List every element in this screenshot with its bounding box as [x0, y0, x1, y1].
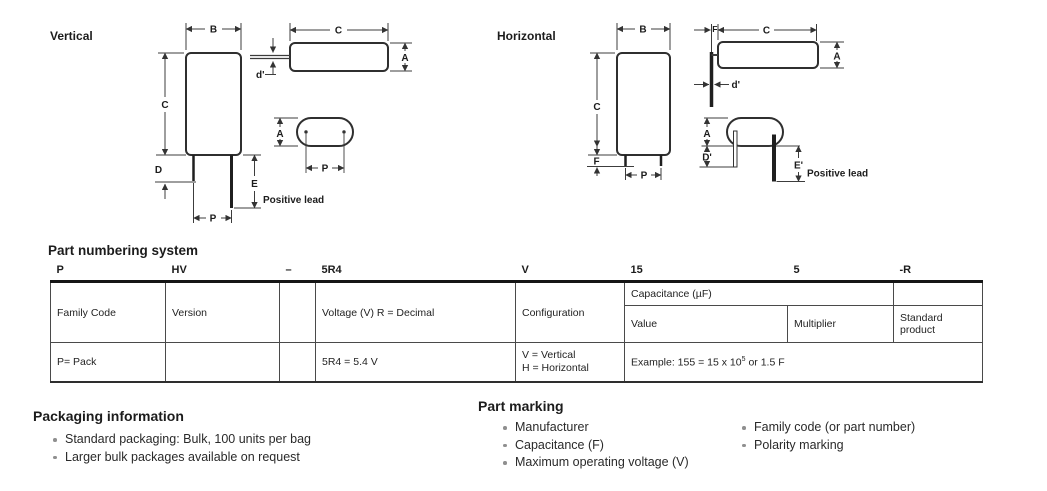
dim-label-b-h-front: B [639, 25, 646, 36]
dim-label-a-v-side: A [401, 53, 408, 64]
bullet-icon [503, 444, 507, 448]
list-item: Manufacturer [503, 419, 689, 437]
label-configuration: Configuration [516, 282, 625, 343]
part-marking-list-right: Family code (or part number) Polarity ma… [742, 419, 915, 454]
list-item: Maximum operating voltage (V) [503, 454, 689, 472]
list-item-text: Manufacturer [515, 420, 589, 434]
list-item: Standard packaging: Bulk, 100 units per … [53, 431, 311, 449]
bullet-icon [742, 444, 746, 448]
dim-label-f-h-side: F [712, 24, 717, 34]
list-item: Larger bulk packages available on reques… [53, 449, 311, 467]
part-numbering-heading: Part numbering system [48, 243, 198, 258]
label-standard-product: Standard product [894, 306, 983, 343]
code-suffix: -R [894, 262, 983, 282]
vertical-front-view [155, 23, 261, 223]
bullet-icon [53, 438, 57, 442]
horizontal-top-view [700, 118, 806, 182]
part-marking-heading: Part marking [478, 398, 564, 414]
label-family-code: Family Code [51, 282, 166, 343]
dim-label-c-h-front: C [593, 102, 600, 113]
values-row: P= Pack 5R4 = 5.4 V V = Vertical H = Hor… [51, 343, 983, 382]
label-capacitance: Capacitance (µF) [625, 282, 894, 306]
config-vertical-option: V = Vertical [522, 349, 619, 362]
dim-label-dprime-v-side: d' [256, 70, 265, 81]
code-config: V [516, 262, 625, 282]
dim-label-a-h-side: A [833, 52, 840, 63]
list-item-text: Standard packaging: Bulk, 100 units per … [65, 432, 311, 446]
list-item-text: Maximum operating voltage (V) [515, 455, 689, 469]
dim-label-dprime2-h-top: D' [702, 153, 712, 164]
meaning-row: Family Code Version Voltage (V) R = Deci… [51, 282, 983, 306]
bullet-icon [503, 426, 507, 430]
dim-label-b-v-front: B [210, 25, 217, 36]
positive-lead-label-horizontal: Positive lead [807, 169, 868, 180]
dim-label-c-v-front: C [161, 100, 168, 111]
positive-lead-label-vertical: Positive lead [263, 195, 324, 206]
dim-label-p-h-front: P [641, 171, 648, 182]
label-value: Value [625, 306, 788, 343]
list-item: Polarity marking [742, 437, 915, 455]
bullet-icon [503, 461, 507, 465]
value-family: P= Pack [51, 343, 166, 382]
value-capacitance-example: Example: 155 = 15 x 105 or 1.5 F [625, 343, 983, 382]
value-configuration: V = Vertical H = Horizontal [516, 343, 625, 382]
dim-label-a-h-top: A [703, 129, 710, 140]
code-dash: – [280, 262, 316, 282]
label-voltage: Voltage (V) R = Decimal [316, 282, 516, 343]
list-item-text: Family code (or part number) [754, 420, 915, 434]
list-item-text: Capacitance (F) [515, 438, 604, 452]
packaging-heading: Packaging information [33, 408, 184, 424]
label-dash-empty [280, 282, 316, 343]
dim-label-eprime-h-top: E' [794, 161, 803, 172]
value-dash-empty [280, 343, 316, 382]
label-version: Version [166, 282, 280, 343]
vertical-side-view [250, 23, 412, 75]
label-multiplier: Multiplier [788, 306, 894, 343]
vertical-top-view [274, 118, 353, 173]
dim-label-p-v-top: P [322, 164, 329, 175]
packaging-list: Standard packaging: Bulk, 100 units per … [53, 431, 311, 466]
bullet-icon [53, 456, 57, 460]
dim-label-dprime-h-side: d' [732, 80, 741, 91]
dim-label-d-v-front: D [155, 165, 162, 176]
package-outline-diagrams: B C D E P Positive lead C A d' [0, 0, 1047, 240]
dim-label-c-v-side: C [335, 26, 342, 37]
code-value: 15 [625, 262, 788, 282]
code-version: HV [166, 262, 280, 282]
label-suffix-empty [894, 282, 983, 306]
dim-label-a-v-top: A [276, 129, 283, 140]
datasheet-page: Vertical Horizontal B C D E P [0, 0, 1047, 491]
part-numbering-table: P HV – 5R4 V 15 5 -R Family Code Version… [50, 262, 983, 383]
part-marking-list-left: Manufacturer Capacitance (F) Maximum ope… [503, 419, 689, 472]
example-suffix: or 1.5 F [746, 356, 785, 368]
dim-label-c-h-side: C [763, 26, 770, 37]
dim-label-e-v-front: E [251, 179, 258, 190]
config-horizontal-option: H = Horizontal [522, 362, 619, 375]
list-item: Family code (or part number) [742, 419, 915, 437]
list-item: Capacitance (F) [503, 437, 689, 455]
code-family: P [51, 262, 166, 282]
example-prefix: Example: 155 = 15 x 10 [631, 356, 742, 368]
dim-label-f-h-front: F [593, 157, 599, 168]
code-voltage: 5R4 [316, 262, 516, 282]
list-item-text: Larger bulk packages available on reques… [65, 450, 300, 464]
code-multiplier: 5 [788, 262, 894, 282]
value-version-empty [166, 343, 280, 382]
bullet-icon [742, 426, 746, 430]
dim-label-p-v-front: P [210, 214, 217, 225]
code-header-row: P HV – 5R4 V 15 5 -R [51, 262, 983, 282]
value-voltage: 5R4 = 5.4 V [316, 343, 516, 382]
list-item-text: Polarity marking [754, 438, 844, 452]
